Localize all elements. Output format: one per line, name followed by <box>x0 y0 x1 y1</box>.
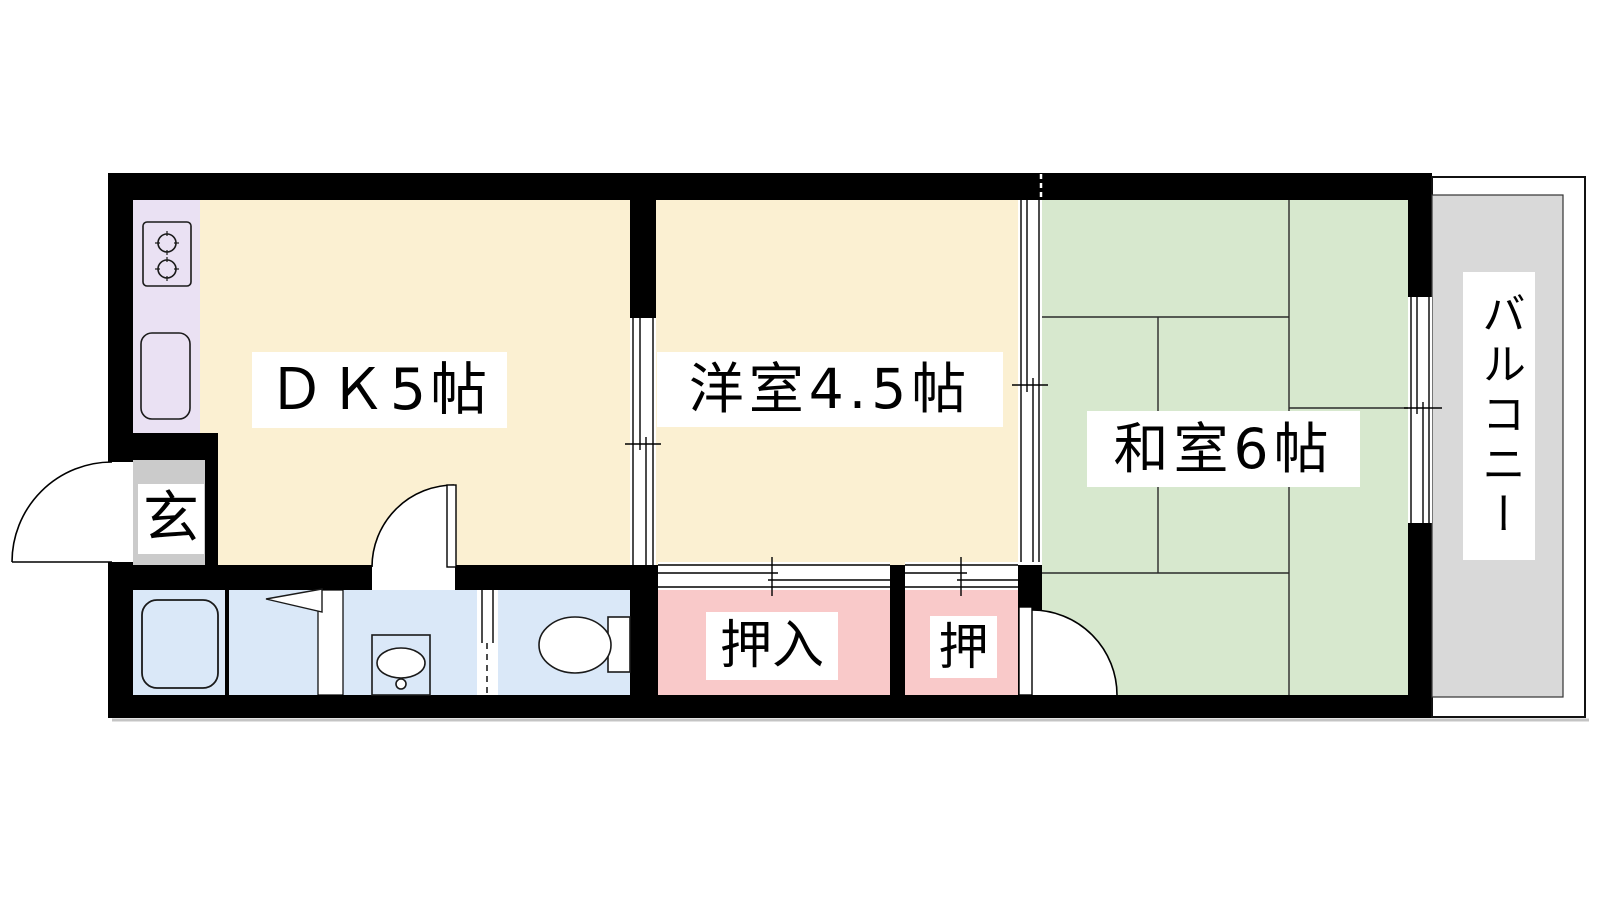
toilet-icon <box>539 617 630 673</box>
floor-plan-drawing <box>0 0 1600 900</box>
label-entrance: 玄 <box>138 484 204 554</box>
washbasin-floor <box>343 590 477 695</box>
label-western-room: 洋室4.5帖 <box>657 352 1003 427</box>
label-japanese-room: 和室6帖 <box>1087 411 1360 487</box>
entrance-door-swing-icon <box>12 462 112 562</box>
oshiire-fusuma <box>658 562 890 590</box>
sliding-door-dk-western <box>630 318 656 565</box>
dk-door-opening <box>372 565 455 590</box>
bathroom-floor <box>133 590 225 695</box>
floor-plan: ＤＫ5帖 洋室4.5帖 和室6帖 バルコニー 玄 押入 押 <box>0 0 1600 900</box>
label-closet-oshi: 押 <box>930 616 997 678</box>
entrance-door-opening <box>104 462 133 562</box>
label-closet-oshiire: 押入 <box>706 612 838 680</box>
label-dining-kitchen: ＤＫ5帖 <box>252 352 507 428</box>
label-balcony: バルコニー <box>1463 272 1535 560</box>
